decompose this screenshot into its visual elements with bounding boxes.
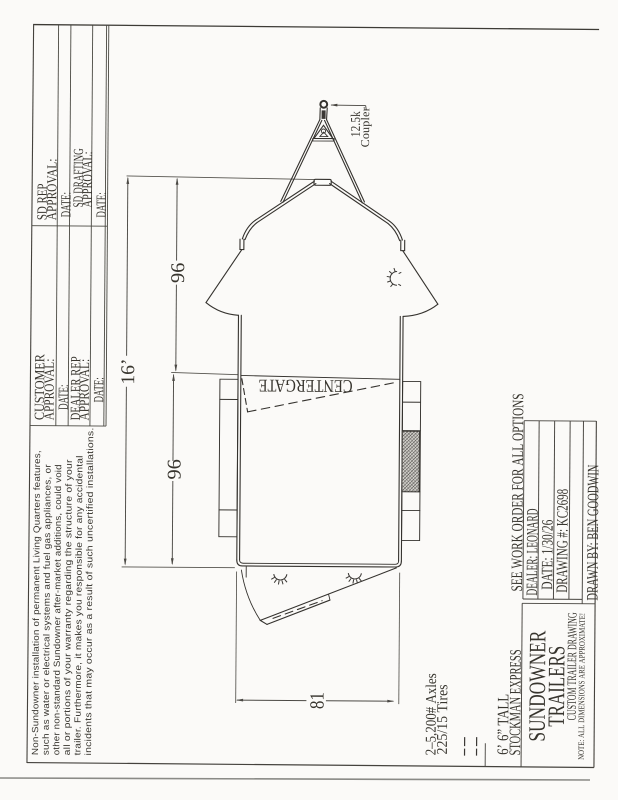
- svg-text:DATE:: DATE:: [95, 192, 110, 217]
- svg-text:APPROVAL:: APPROVAL:: [78, 359, 93, 421]
- svg-text:225/15 Tires: 225/15 Tires: [435, 684, 451, 754]
- svg-text:APPROVAL:: APPROVAL:: [42, 359, 57, 421]
- svg-text:DRAWING #: KC2698: DRAWING #: KC2698: [554, 489, 572, 593]
- svg-text:96: 96: [168, 262, 189, 283]
- svg-text:6’ 6” TALL: 6’ 6” TALL: [495, 694, 512, 755]
- svg-text:16’: 16’: [118, 358, 139, 384]
- svg-text:DATE:: DATE:: [92, 377, 107, 402]
- svg-text:Coupler: Coupler: [358, 107, 372, 147]
- svg-text:81: 81: [306, 692, 328, 709]
- svg-text:96: 96: [164, 459, 185, 480]
- svg-text:APPROVAL:: APPROVAL:: [45, 159, 60, 221]
- svg-text:APPROVAL:: APPROVAL:: [81, 151, 96, 207]
- svg-text:NOTE: ALL DIMENSIONS ARE APPRO: NOTE: ALL DIMENSIONS ARE APPROXIMATE!: [576, 613, 587, 760]
- svg-text:DRAWN BY: BEN GOODWIN: DRAWN BY: BEN GOODWIN: [585, 464, 603, 600]
- svg-text:CENTERGATE: CENTERGATE: [259, 376, 353, 397]
